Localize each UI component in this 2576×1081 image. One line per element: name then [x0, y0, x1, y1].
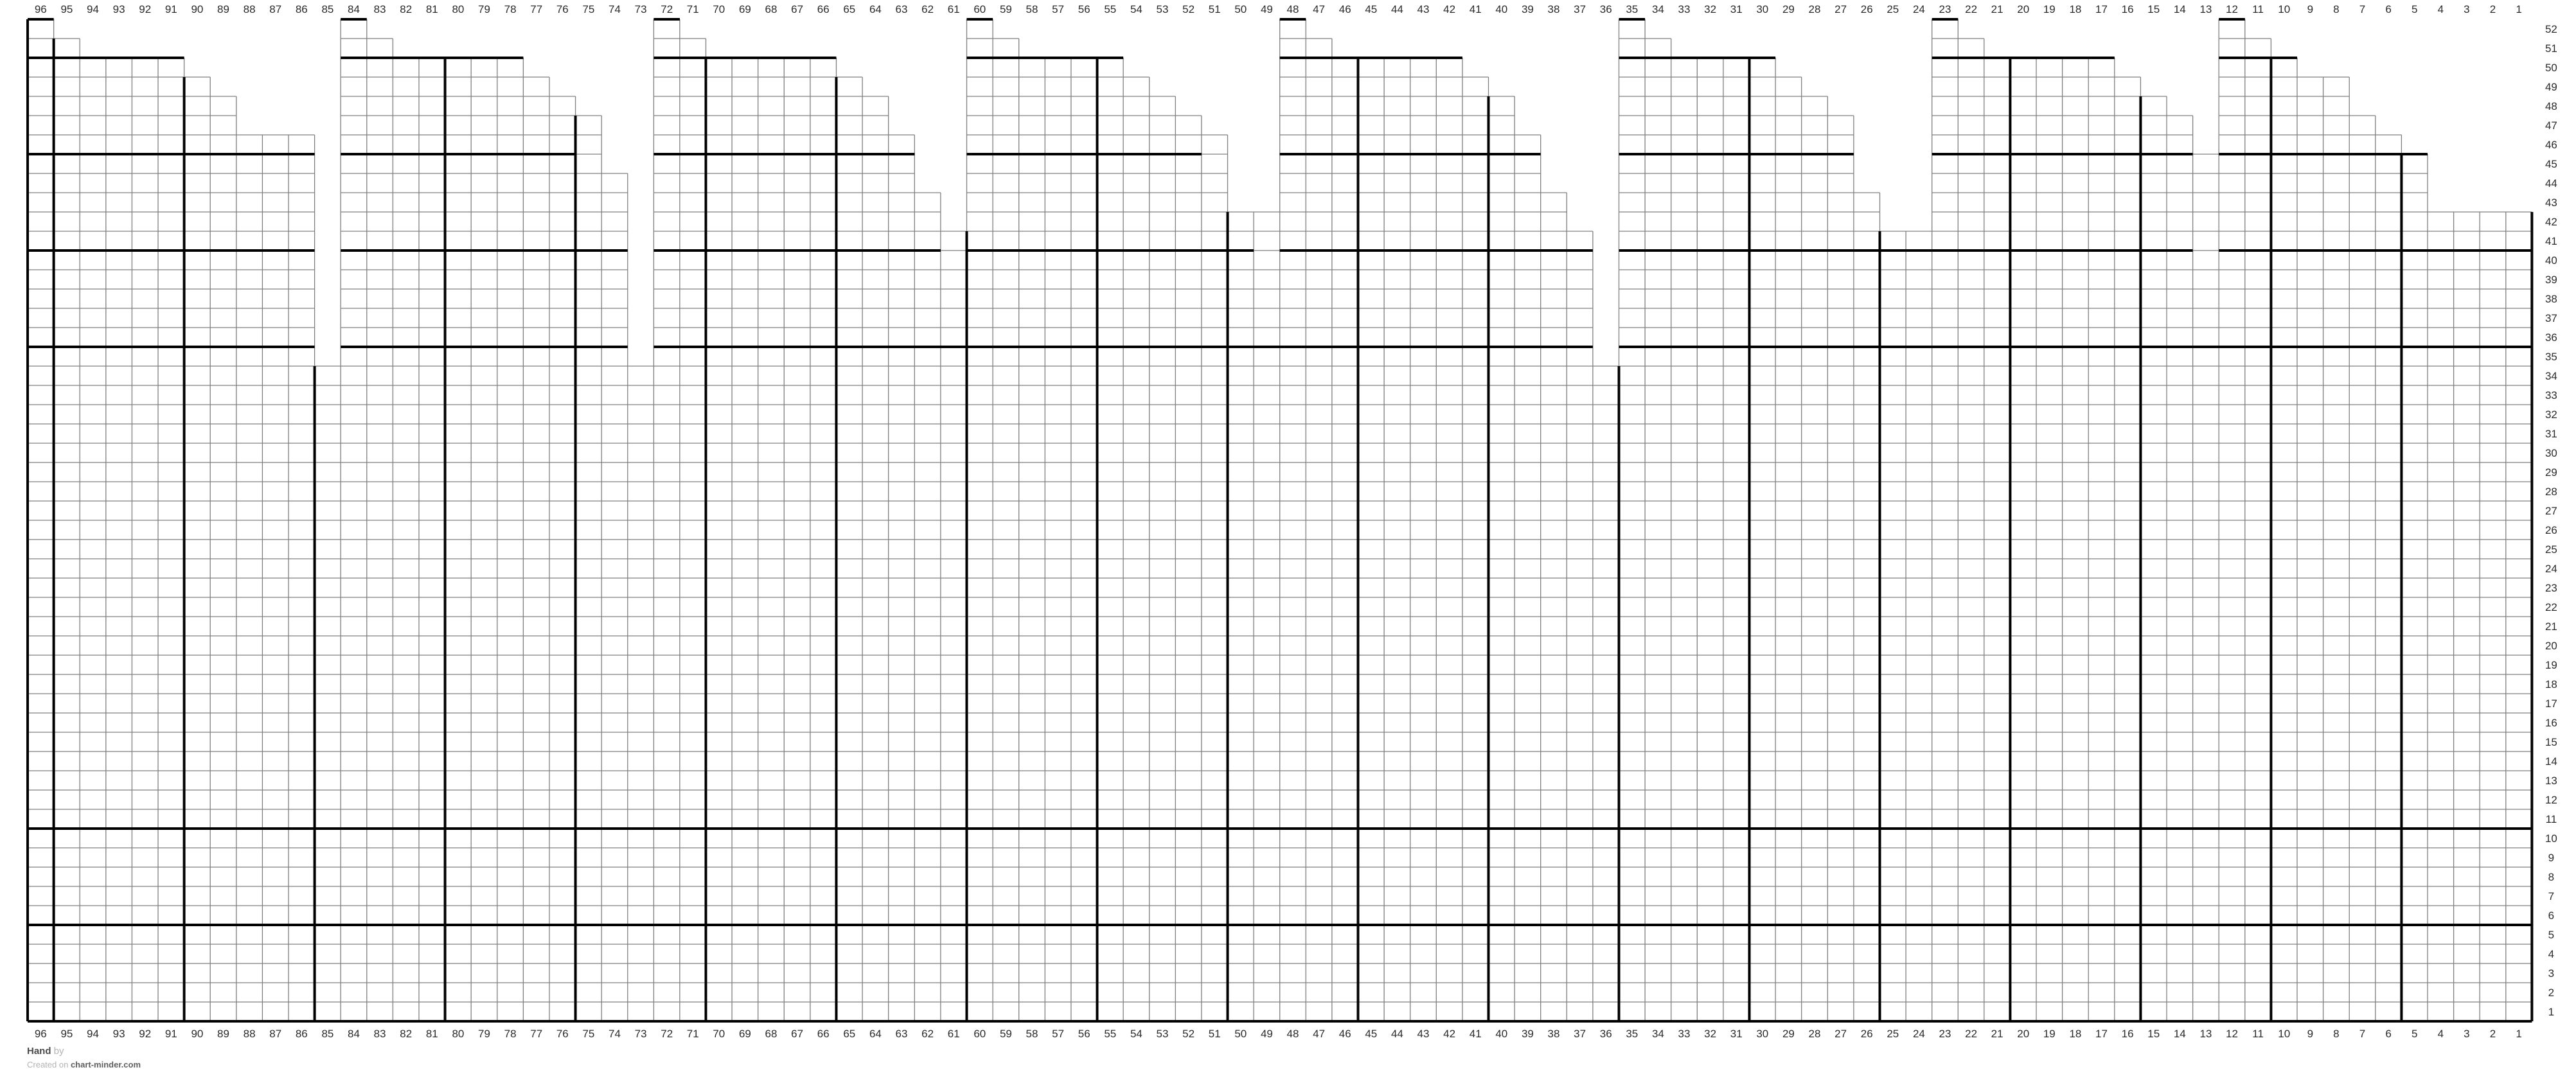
row-label-right: 50 — [2545, 62, 2557, 74]
column-label-bottom: 75 — [582, 1028, 594, 1040]
row-label-right: 9 — [2548, 852, 2554, 864]
footer-credit-line: Hand by — [27, 1046, 64, 1057]
column-label-top: 94 — [87, 3, 99, 15]
column-label-top: 12 — [2226, 3, 2238, 15]
column-label-bottom: 24 — [1913, 1028, 1925, 1040]
column-label-top: 90 — [191, 3, 203, 15]
column-label-bottom: 25 — [1887, 1028, 1899, 1040]
row-label-right: 35 — [2545, 351, 2557, 363]
column-label-top: 33 — [1678, 3, 1691, 15]
row-label-right: 19 — [2545, 659, 2557, 671]
column-label-top: 44 — [1391, 3, 1403, 15]
column-label-top: 49 — [1261, 3, 1273, 15]
column-label-bottom: 76 — [556, 1028, 569, 1040]
column-label-bottom: 21 — [1991, 1028, 2003, 1040]
column-label-bottom: 23 — [1939, 1028, 1951, 1040]
column-label-top: 28 — [1809, 3, 1821, 15]
row-label-right: 47 — [2545, 119, 2557, 132]
column-label-top: 67 — [791, 3, 803, 15]
column-label-top: 15 — [2147, 3, 2160, 15]
column-label-bottom: 43 — [1417, 1028, 1430, 1040]
column-label-bottom: 70 — [713, 1028, 725, 1040]
column-label-bottom: 52 — [1182, 1028, 1195, 1040]
column-label-bottom: 78 — [504, 1028, 517, 1040]
column-label-bottom: 36 — [1600, 1028, 1612, 1040]
row-label-right: 33 — [2545, 389, 2557, 401]
column-label-top: 14 — [2174, 3, 2186, 15]
row-label-right: 27 — [2545, 505, 2557, 517]
column-label-top: 74 — [608, 3, 621, 15]
column-label-top: 11 — [2252, 3, 2264, 15]
column-label-top: 36 — [1600, 3, 1612, 15]
column-label-top: 10 — [2278, 3, 2290, 15]
column-label-top: 81 — [426, 3, 438, 15]
column-label-bottom: 17 — [2095, 1028, 2108, 1040]
column-label-top: 20 — [2017, 3, 2029, 15]
row-label-right: 43 — [2545, 197, 2557, 209]
column-label-bottom: 2 — [2490, 1028, 2496, 1040]
column-label-top: 2 — [2490, 3, 2496, 15]
column-label-bottom: 58 — [1026, 1028, 1038, 1040]
column-label-bottom: 77 — [530, 1028, 542, 1040]
column-label-top: 26 — [1861, 3, 1873, 15]
column-label-bottom: 74 — [608, 1028, 621, 1040]
column-label-bottom: 82 — [400, 1028, 412, 1040]
column-label-bottom: 48 — [1287, 1028, 1299, 1040]
row-label-right: 28 — [2545, 486, 2557, 498]
column-label-bottom: 49 — [1261, 1028, 1273, 1040]
column-label-top: 5 — [2412, 3, 2417, 15]
column-label-bottom: 86 — [296, 1028, 308, 1040]
column-label-top: 66 — [817, 3, 830, 15]
column-label-top: 65 — [843, 3, 855, 15]
row-label-right: 6 — [2548, 910, 2554, 922]
row-label-right: 51 — [2545, 42, 2557, 55]
column-label-top: 75 — [582, 3, 594, 15]
column-label-bottom: 11 — [2252, 1028, 2264, 1040]
column-label-bottom: 15 — [2147, 1028, 2160, 1040]
column-label-top: 95 — [60, 3, 73, 15]
column-label-bottom: 46 — [1339, 1028, 1351, 1040]
row-label-right: 49 — [2545, 81, 2557, 93]
column-label-top: 89 — [217, 3, 229, 15]
column-label-bottom: 39 — [1522, 1028, 1534, 1040]
row-label-right: 1 — [2548, 1006, 2554, 1018]
column-label-top: 4 — [2438, 3, 2444, 15]
column-label-bottom: 4 — [2438, 1028, 2444, 1040]
column-label-bottom: 50 — [1234, 1028, 1247, 1040]
column-label-top: 3 — [2464, 3, 2469, 15]
row-label-right: 52 — [2545, 23, 2557, 35]
column-label-top: 7 — [2359, 3, 2365, 15]
row-label-right: 24 — [2545, 563, 2557, 575]
row-label-right: 18 — [2545, 678, 2557, 690]
column-label-top: 21 — [1991, 3, 2003, 15]
column-label-bottom: 3 — [2464, 1028, 2469, 1040]
knitting-chart-grid: 9696959594949393929291919090898988888787… — [0, 0, 2576, 1081]
row-label-right: 14 — [2545, 755, 2557, 768]
column-label-top: 63 — [896, 3, 908, 15]
column-label-top: 76 — [556, 3, 569, 15]
column-label-top: 82 — [400, 3, 412, 15]
row-label-right: 39 — [2545, 274, 2557, 286]
row-label-right: 17 — [2545, 698, 2557, 710]
row-label-right: 38 — [2545, 293, 2557, 305]
column-label-bottom: 41 — [1470, 1028, 1482, 1040]
column-label-bottom: 38 — [1548, 1028, 1560, 1040]
row-label-right: 20 — [2545, 640, 2557, 652]
row-label-right: 32 — [2545, 409, 2557, 421]
column-label-bottom: 60 — [973, 1028, 986, 1040]
column-label-bottom: 8 — [2333, 1028, 2339, 1040]
column-label-bottom: 63 — [896, 1028, 908, 1040]
column-label-bottom: 32 — [1704, 1028, 1716, 1040]
column-label-top: 68 — [765, 3, 777, 15]
column-label-bottom: 31 — [1730, 1028, 1743, 1040]
row-label-right: 44 — [2545, 177, 2557, 189]
column-label-top: 86 — [296, 3, 308, 15]
column-label-top: 91 — [165, 3, 177, 15]
column-label-bottom: 35 — [1626, 1028, 1638, 1040]
column-label-top: 40 — [1495, 3, 1507, 15]
column-label-top: 22 — [1965, 3, 1977, 15]
column-label-bottom: 10 — [2278, 1028, 2290, 1040]
column-label-bottom: 56 — [1078, 1028, 1090, 1040]
row-label-right: 11 — [2546, 813, 2557, 825]
footer-source-line: Created on chart-minder.com — [27, 1060, 141, 1069]
column-label-bottom: 22 — [1965, 1028, 1977, 1040]
column-label-bottom: 16 — [2122, 1028, 2134, 1040]
column-label-bottom: 9 — [2307, 1028, 2313, 1040]
column-label-bottom: 79 — [478, 1028, 490, 1040]
chart-author-label: by — [51, 1046, 64, 1057]
column-label-bottom: 71 — [687, 1028, 699, 1040]
column-label-bottom: 45 — [1365, 1028, 1377, 1040]
chart-minder-link[interactable]: chart-minder.com — [71, 1060, 141, 1069]
row-label-right: 3 — [2548, 967, 2554, 980]
row-label-right: 31 — [2545, 428, 2557, 440]
column-label-bottom: 90 — [191, 1028, 203, 1040]
column-label-bottom: 67 — [791, 1028, 803, 1040]
column-label-top: 80 — [452, 3, 464, 15]
column-label-bottom: 57 — [1052, 1028, 1064, 1040]
column-label-bottom: 94 — [87, 1028, 99, 1040]
column-label-top: 19 — [2043, 3, 2056, 15]
column-label-bottom: 53 — [1157, 1028, 1169, 1040]
column-label-top: 6 — [2385, 3, 2391, 15]
column-label-bottom: 87 — [269, 1028, 281, 1040]
column-label-top: 9 — [2307, 3, 2313, 15]
column-label-bottom: 85 — [321, 1028, 333, 1040]
row-label-right: 8 — [2548, 871, 2554, 883]
column-label-top: 73 — [635, 3, 647, 15]
column-label-top: 60 — [973, 3, 986, 15]
column-label-bottom: 30 — [1756, 1028, 1768, 1040]
row-label-right: 23 — [2545, 582, 2557, 594]
column-label-bottom: 37 — [1574, 1028, 1586, 1040]
row-label-right: 4 — [2548, 948, 2554, 960]
column-label-top: 43 — [1417, 3, 1430, 15]
row-label-right: 26 — [2545, 524, 2557, 536]
column-label-bottom: 6 — [2385, 1028, 2391, 1040]
column-label-bottom: 88 — [244, 1028, 256, 1040]
row-label-right: 5 — [2548, 929, 2554, 941]
column-label-top: 96 — [35, 3, 47, 15]
knitting-chart: 9696959594949393929291919090898988888787… — [0, 0, 2576, 1081]
row-label-right: 29 — [2545, 466, 2557, 479]
column-label-top: 78 — [504, 3, 517, 15]
row-label-right: 45 — [2545, 158, 2557, 170]
column-label-bottom: 19 — [2043, 1028, 2056, 1040]
column-label-top: 88 — [244, 3, 256, 15]
row-label-right: 36 — [2545, 331, 2557, 344]
column-label-bottom: 14 — [2174, 1028, 2186, 1040]
column-label-top: 45 — [1365, 3, 1377, 15]
column-label-top: 31 — [1730, 3, 1743, 15]
column-label-top: 25 — [1887, 3, 1899, 15]
column-label-top: 79 — [478, 3, 490, 15]
column-label-top: 70 — [713, 3, 725, 15]
column-label-bottom: 47 — [1313, 1028, 1325, 1040]
column-label-top: 32 — [1704, 3, 1716, 15]
column-label-top: 38 — [1548, 3, 1560, 15]
column-label-top: 69 — [739, 3, 751, 15]
column-label-bottom: 81 — [426, 1028, 438, 1040]
column-label-top: 50 — [1234, 3, 1247, 15]
column-label-top: 46 — [1339, 3, 1351, 15]
column-label-bottom: 80 — [452, 1028, 464, 1040]
column-label-bottom: 89 — [217, 1028, 229, 1040]
column-label-top: 52 — [1182, 3, 1195, 15]
created-on-label: Created on — [27, 1060, 71, 1069]
chart-title: Hand — [27, 1046, 51, 1057]
column-label-top: 72 — [661, 3, 673, 15]
column-label-bottom: 65 — [843, 1028, 855, 1040]
column-label-top: 48 — [1287, 3, 1299, 15]
column-label-bottom: 61 — [948, 1028, 960, 1040]
column-label-top: 16 — [2122, 3, 2134, 15]
row-label-right: 25 — [2545, 543, 2557, 556]
column-label-top: 18 — [2069, 3, 2081, 15]
column-label-top: 57 — [1052, 3, 1064, 15]
column-label-top: 92 — [139, 3, 151, 15]
row-label-right: 41 — [2545, 235, 2557, 247]
column-label-top: 58 — [1026, 3, 1038, 15]
column-label-top: 39 — [1522, 3, 1534, 15]
column-label-top: 59 — [1000, 3, 1012, 15]
column-label-top: 93 — [113, 3, 125, 15]
column-label-bottom: 59 — [1000, 1028, 1012, 1040]
column-label-top: 83 — [374, 3, 386, 15]
column-label-bottom: 83 — [374, 1028, 386, 1040]
column-label-bottom: 73 — [635, 1028, 647, 1040]
row-label-right: 34 — [2545, 370, 2557, 382]
column-label-top: 85 — [321, 3, 333, 15]
column-label-bottom: 72 — [661, 1028, 673, 1040]
row-label-right: 40 — [2545, 254, 2557, 267]
column-label-bottom: 7 — [2359, 1028, 2365, 1040]
column-label-top: 42 — [1443, 3, 1455, 15]
column-label-top: 61 — [948, 3, 960, 15]
column-label-top: 35 — [1626, 3, 1638, 15]
column-label-top: 77 — [530, 3, 542, 15]
row-label-right: 42 — [2545, 216, 2557, 228]
column-label-bottom: 91 — [165, 1028, 177, 1040]
column-label-top: 27 — [1834, 3, 1847, 15]
row-label-right: 7 — [2548, 890, 2554, 902]
column-label-top: 34 — [1652, 3, 1664, 15]
column-label-top: 17 — [2095, 3, 2108, 15]
column-label-top: 24 — [1913, 3, 1925, 15]
column-label-top: 51 — [1209, 3, 1221, 15]
column-label-bottom: 29 — [1782, 1028, 1795, 1040]
column-label-top: 84 — [348, 3, 360, 15]
row-label-right: 16 — [2545, 717, 2557, 729]
column-label-bottom: 5 — [2412, 1028, 2417, 1040]
column-label-top: 54 — [1130, 3, 1142, 15]
column-label-top: 8 — [2333, 3, 2339, 15]
column-label-top: 53 — [1157, 3, 1169, 15]
column-label-top: 13 — [2199, 3, 2212, 15]
column-label-bottom: 62 — [921, 1028, 934, 1040]
column-label-bottom: 96 — [35, 1028, 47, 1040]
column-label-bottom: 66 — [817, 1028, 830, 1040]
column-label-bottom: 12 — [2226, 1028, 2238, 1040]
column-label-bottom: 27 — [1834, 1028, 1847, 1040]
column-label-bottom: 26 — [1861, 1028, 1873, 1040]
column-label-top: 71 — [687, 3, 699, 15]
row-label-right: 48 — [2545, 100, 2557, 112]
column-label-bottom: 69 — [739, 1028, 751, 1040]
row-label-right: 37 — [2545, 312, 2557, 324]
column-label-top: 30 — [1756, 3, 1768, 15]
column-label-top: 56 — [1078, 3, 1090, 15]
column-label-top: 23 — [1939, 3, 1951, 15]
column-label-top: 41 — [1470, 3, 1482, 15]
column-label-top: 87 — [269, 3, 281, 15]
column-label-bottom: 84 — [348, 1028, 360, 1040]
row-label-right: 30 — [2545, 447, 2557, 459]
row-label-right: 13 — [2545, 775, 2557, 787]
column-label-bottom: 95 — [60, 1028, 73, 1040]
column-label-top: 1 — [2516, 3, 2521, 15]
column-label-bottom: 51 — [1209, 1028, 1221, 1040]
grid-thin-lines — [28, 19, 2532, 1021]
column-label-bottom: 28 — [1809, 1028, 1821, 1040]
row-label-right: 10 — [2545, 832, 2557, 845]
column-label-bottom: 55 — [1104, 1028, 1116, 1040]
column-label-bottom: 42 — [1443, 1028, 1455, 1040]
column-label-top: 62 — [921, 3, 934, 15]
column-label-top: 64 — [869, 3, 882, 15]
column-label-bottom: 54 — [1130, 1028, 1142, 1040]
column-label-bottom: 44 — [1391, 1028, 1403, 1040]
column-label-bottom: 18 — [2069, 1028, 2081, 1040]
column-label-bottom: 34 — [1652, 1028, 1664, 1040]
column-label-top: 55 — [1104, 3, 1116, 15]
column-label-bottom: 13 — [2199, 1028, 2212, 1040]
column-label-bottom: 68 — [765, 1028, 777, 1040]
column-label-bottom: 1 — [2516, 1028, 2521, 1040]
column-label-bottom: 92 — [139, 1028, 151, 1040]
row-label-right: 21 — [2545, 620, 2557, 633]
row-label-right: 46 — [2545, 139, 2557, 151]
column-label-bottom: 20 — [2017, 1028, 2029, 1040]
column-label-top: 47 — [1313, 3, 1325, 15]
column-label-top: 29 — [1782, 3, 1795, 15]
row-label-right: 12 — [2545, 794, 2557, 806]
column-label-bottom: 40 — [1495, 1028, 1507, 1040]
column-label-bottom: 93 — [113, 1028, 125, 1040]
row-label-right: 22 — [2545, 601, 2557, 613]
column-label-top: 37 — [1574, 3, 1586, 15]
column-label-bottom: 64 — [869, 1028, 882, 1040]
row-label-right: 15 — [2545, 736, 2557, 748]
column-label-bottom: 33 — [1678, 1028, 1691, 1040]
row-label-right: 2 — [2548, 987, 2554, 999]
